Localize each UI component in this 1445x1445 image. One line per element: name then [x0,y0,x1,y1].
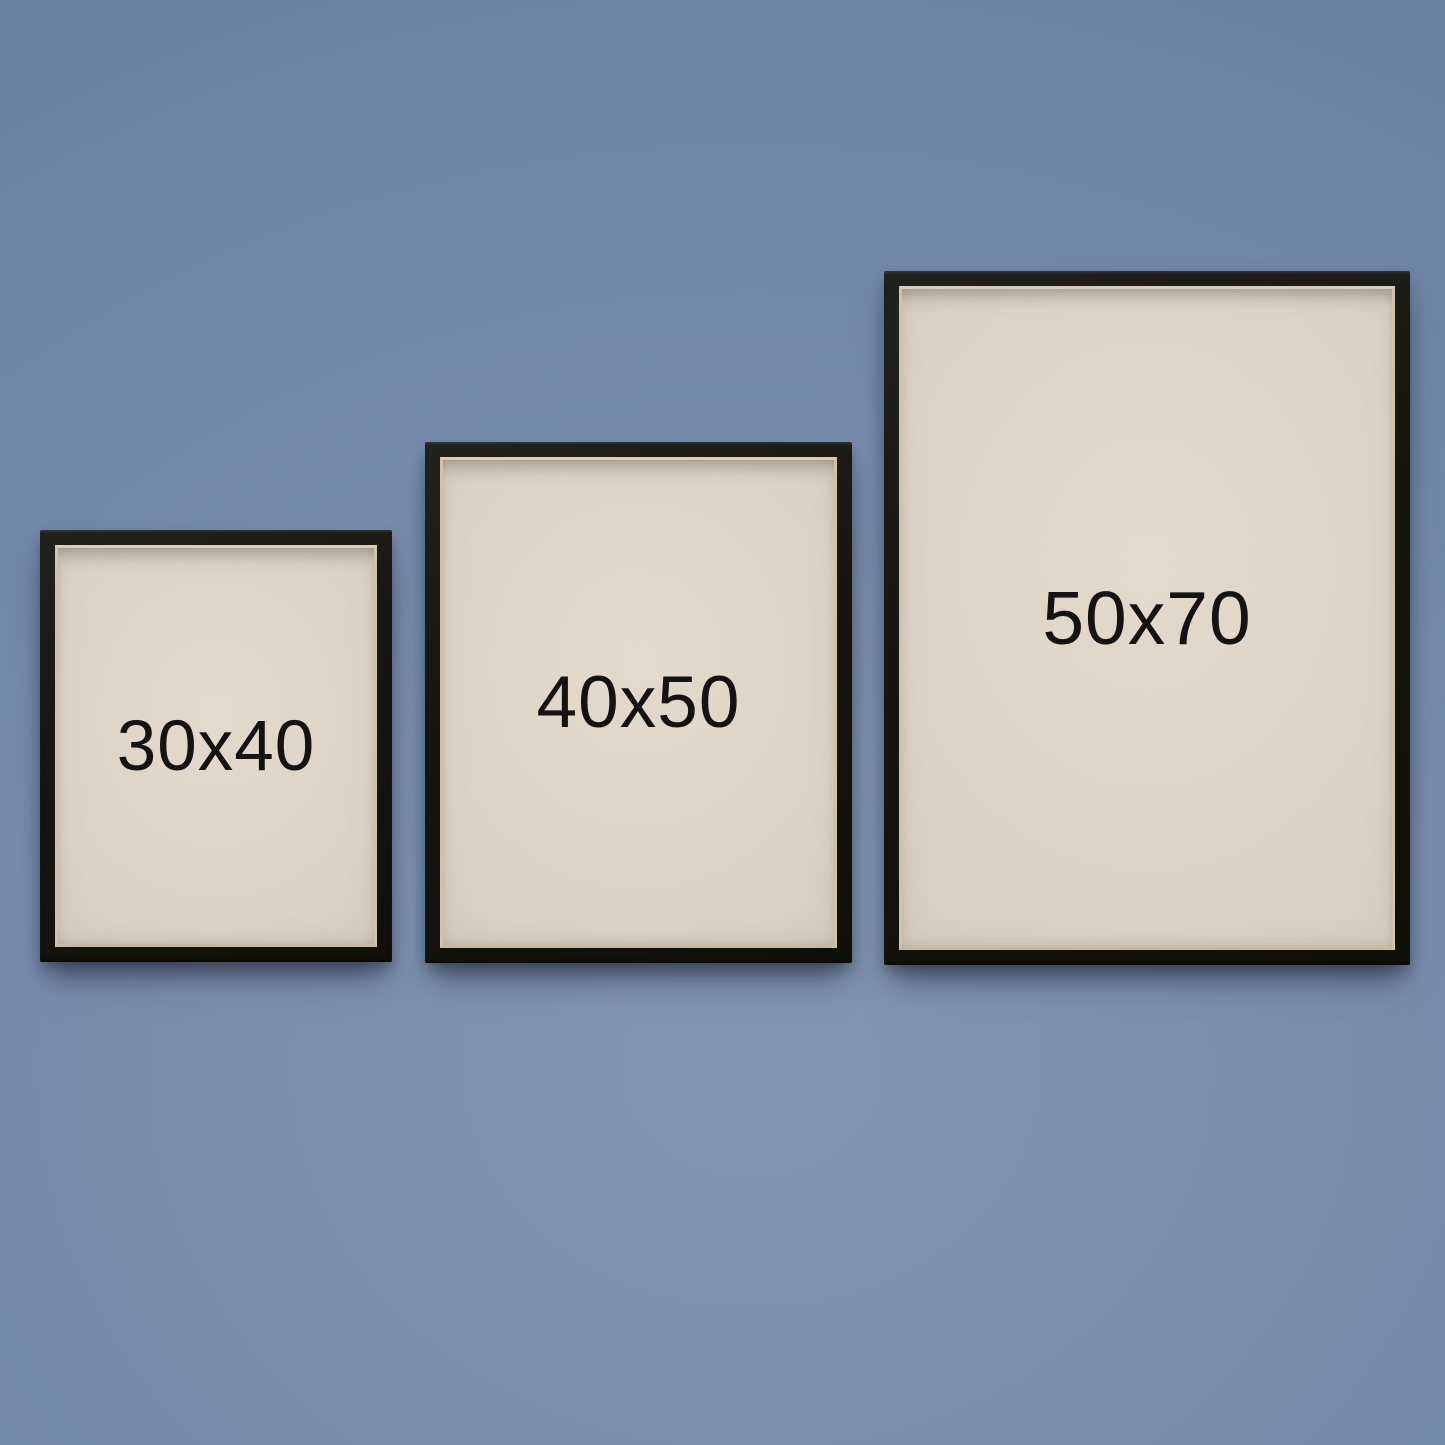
picture-frame-40x50: 40x50 [425,442,852,963]
poster-paper-50x70: 50x70 [902,289,1392,947]
frame-mat-50x70: 50x70 [899,286,1395,950]
frame-mat-30x40: 30x40 [55,545,377,947]
wall: 30x40 40x50 50x70 [0,0,1445,1445]
size-label-50x70: 50x70 [1042,581,1251,656]
size-label-40x50: 40x50 [537,666,741,739]
frame-mat-40x50: 40x50 [440,457,837,948]
picture-frame-30x40: 30x40 [40,530,392,962]
poster-paper-40x50: 40x50 [443,460,834,945]
size-label-30x40: 30x40 [117,711,315,782]
picture-frame-50x70: 50x70 [884,271,1410,965]
poster-paper-30x40: 30x40 [58,548,374,944]
